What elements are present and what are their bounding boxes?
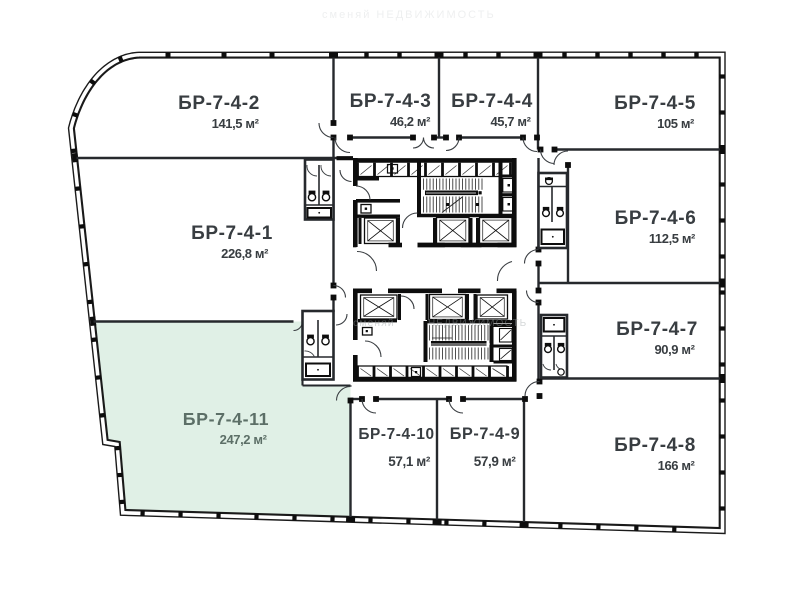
svg-text:166 м²: 166 м² <box>658 458 696 473</box>
svg-text:90,9 м²: 90,9 м² <box>654 342 695 357</box>
svg-text:БР-7-4-7: БР-7-4-7 <box>616 319 698 340</box>
svg-text:45,7 м²: 45,7 м² <box>490 114 531 129</box>
svg-text:сменяй НЕДВИЖИМОСТЬ: сменяй НЕДВИЖИМОСТЬ <box>322 9 496 21</box>
svg-text:БР-7-4-5: БР-7-4-5 <box>614 93 696 114</box>
svg-text:57,9 м²: 57,9 м² <box>474 454 517 469</box>
svg-text:БР-7-4-8: БР-7-4-8 <box>614 435 696 456</box>
svg-text:141,5 м²: 141,5 м² <box>212 116 260 131</box>
svg-text:БР-7-4-1: БР-7-4-1 <box>191 223 273 244</box>
svg-text:57,1 м²: 57,1 м² <box>388 454 431 469</box>
svg-text:247,2 м²: 247,2 м² <box>220 432 268 447</box>
svg-text:БР-7-4-9: БР-7-4-9 <box>450 425 520 443</box>
svg-text:БР-7-4-11: БР-7-4-11 <box>183 409 269 429</box>
svg-text:БР-7-4-2: БР-7-4-2 <box>178 93 260 114</box>
svg-text:БР-7-4-6: БР-7-4-6 <box>615 208 697 229</box>
svg-text:БР-7-4-4: БР-7-4-4 <box>451 91 533 112</box>
svg-text:46,2 м²: 46,2 м² <box>390 114 431 129</box>
svg-text:112,5 м²: 112,5 м² <box>649 231 696 246</box>
svg-text:БР-7-4-10: БР-7-4-10 <box>358 426 434 443</box>
svg-text:НЕДВИЖИМОСТЬ: НЕДВИЖИМОСТЬ <box>428 318 527 329</box>
svg-text:БР-7-4-3: БР-7-4-3 <box>350 91 432 112</box>
svg-text:226,8 м²: 226,8 м² <box>221 246 269 261</box>
svg-text:сменяй: сменяй <box>353 317 395 329</box>
svg-text:105 м²: 105 м² <box>657 116 695 131</box>
